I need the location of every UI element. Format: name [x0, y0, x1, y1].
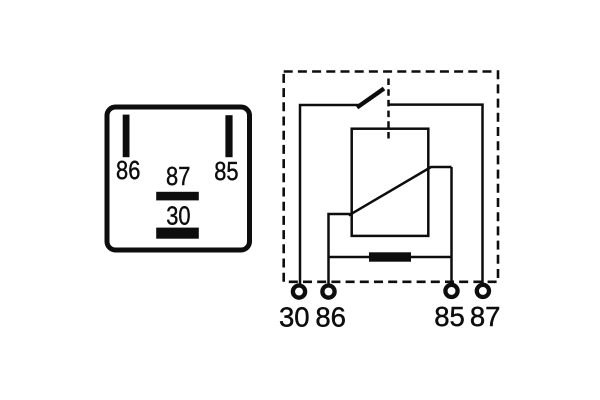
- svg-text:85: 85: [214, 157, 238, 186]
- svg-text:86: 86: [116, 156, 140, 185]
- svg-text:30: 30: [279, 301, 310, 332]
- svg-text:87: 87: [166, 162, 190, 191]
- svg-text:30: 30: [166, 202, 190, 231]
- svg-text:86: 86: [315, 301, 346, 332]
- svg-text:85: 85: [434, 301, 465, 332]
- svg-text:87: 87: [470, 301, 501, 332]
